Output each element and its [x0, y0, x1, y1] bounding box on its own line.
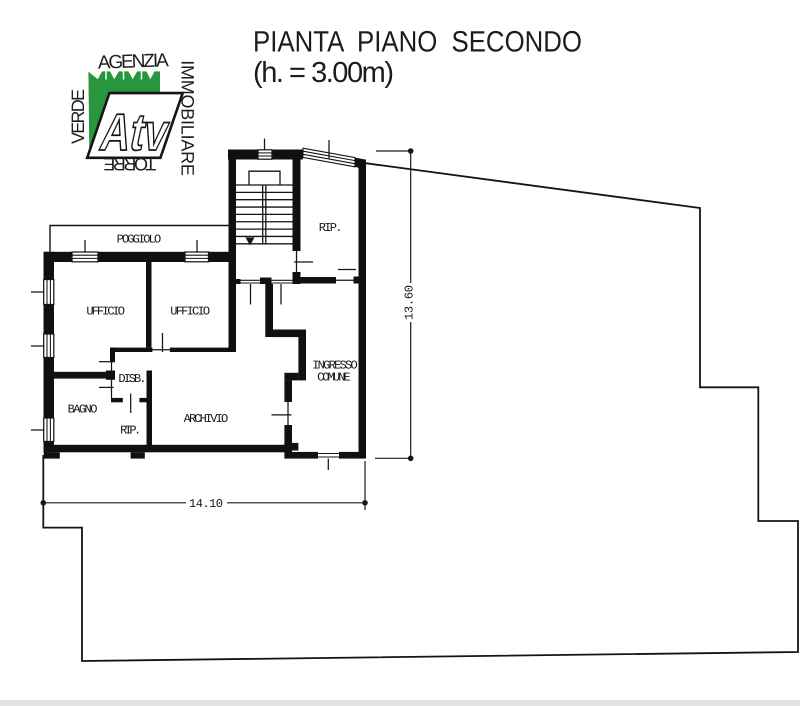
svg-text:PIANTA PIANO SECONDO: PIANTA PIANO SECONDO — [253, 26, 582, 59]
svg-text:Atv: Atv — [95, 104, 173, 162]
svg-text:RIP.: RIP. — [120, 424, 141, 438]
svg-text:POGGIOLO: POGGIOLO — [117, 233, 162, 247]
svg-text:IMMOBILIARE: IMMOBILIARE — [178, 60, 198, 176]
svg-text:COMUNE: COMUNE — [317, 371, 351, 385]
svg-text:UFFICIO: UFFICIO — [86, 305, 125, 319]
svg-text:BAGNO: BAGNO — [68, 402, 98, 416]
svg-text:DISB.: DISB. — [118, 372, 146, 386]
svg-text:ARCHIVIO: ARCHIVIO — [184, 412, 229, 426]
svg-text:TORRE: TORRE — [103, 154, 156, 174]
svg-text:14.10: 14.10 — [189, 497, 223, 511]
svg-text:UFFICIO: UFFICIO — [170, 305, 210, 319]
svg-text:13.60: 13.60 — [403, 285, 417, 320]
svg-text:(h. = 3.00m): (h. = 3.00m) — [253, 57, 394, 89]
svg-text:AGENZIA: AGENZIA — [97, 50, 169, 73]
svg-text:VERDE: VERDE — [68, 89, 88, 144]
svg-text:RIP.: RIP. — [319, 221, 343, 235]
